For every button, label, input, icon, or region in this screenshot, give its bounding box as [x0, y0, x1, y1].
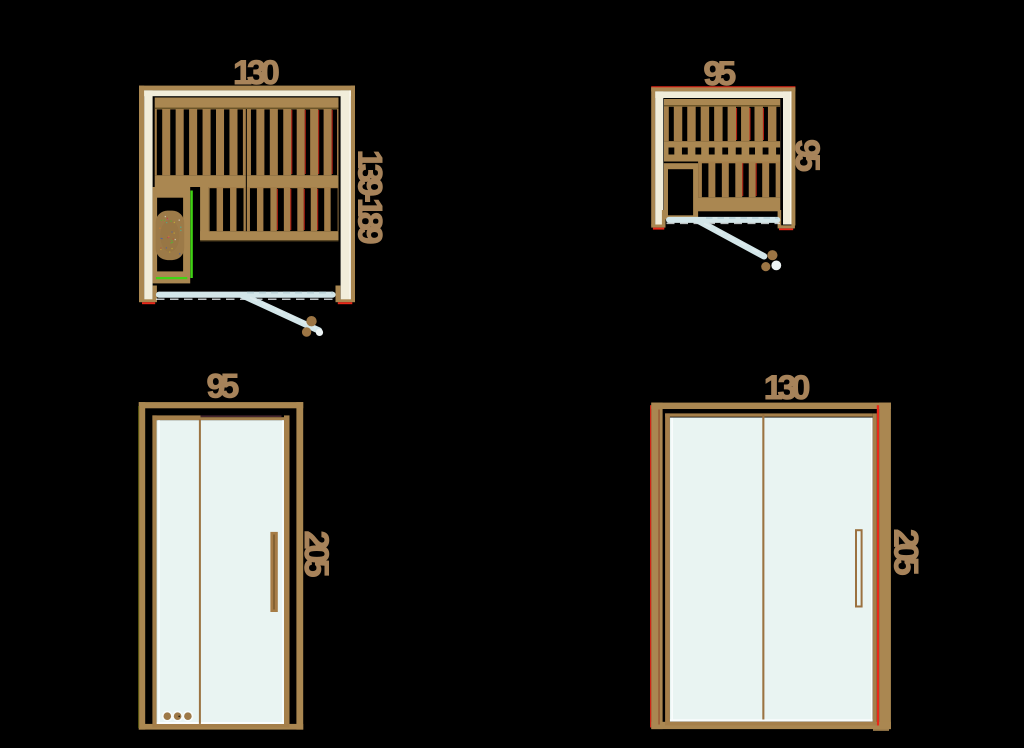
svg-text:205: 205 [887, 529, 925, 575]
svg-text:95: 95 [206, 367, 238, 405]
svg-text:130: 130 [764, 369, 810, 407]
svg-text:139-189: 139-189 [351, 150, 389, 244]
